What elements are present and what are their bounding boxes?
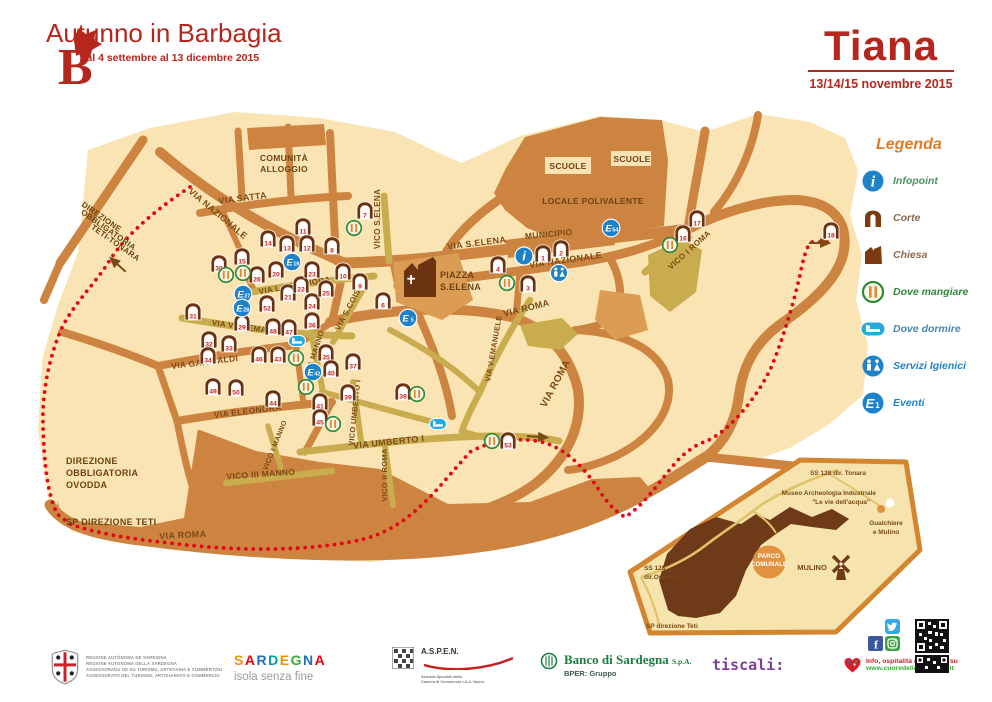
- sardegna-letter: A: [315, 652, 327, 668]
- banco-emblem-icon: [540, 652, 558, 670]
- svg-text:42: 42: [314, 372, 320, 378]
- legend-title: Legenda: [876, 136, 990, 154]
- svg-text:37: 37: [349, 364, 357, 371]
- town-name: Tiana: [806, 24, 956, 68]
- aspen-logo: A.S.P.E.N. Azienda Speciale della Camera…: [392, 647, 516, 685]
- restaurant-marker[interactable]: [500, 276, 515, 291]
- parco-comunale-label: PARCO: [758, 553, 780, 560]
- page: VIA SATTAVIA NAZIONALEVIA S.ELENAMUNICIP…: [0, 0, 992, 702]
- street-label: VICO S.ELENA: [373, 189, 382, 249]
- corte-marker-10[interactable]: 10: [335, 263, 351, 281]
- restaurant-marker[interactable]: [410, 387, 425, 402]
- corte-marker-34[interactable]: 34: [200, 347, 216, 365]
- svg-text:29: 29: [238, 325, 246, 332]
- toilets-icon: [860, 353, 886, 379]
- svg-text:54: 54: [612, 228, 619, 234]
- corte-marker-20[interactable]: 20: [268, 261, 284, 279]
- sardegna-wordmark: SARDEGNA: [234, 652, 326, 670]
- corte-marker-25[interactable]: 25: [318, 280, 334, 298]
- corte-marker-8[interactable]: 8: [324, 237, 340, 255]
- svg-text:10: 10: [339, 274, 347, 281]
- toilets-marker[interactable]: [550, 264, 567, 281]
- restaurant-marker[interactable]: [326, 417, 341, 432]
- restaurant-marker[interactable]: [219, 268, 234, 283]
- event-marker-E54[interactable]: E54: [602, 219, 620, 237]
- svg-text:13: 13: [283, 246, 291, 253]
- svg-text:38: 38: [399, 394, 407, 401]
- svg-text:17: 17: [693, 221, 701, 228]
- inset-label: Museo Archeologia Industriale: [782, 490, 877, 497]
- regione-sardegna-logo: REGIONE AUTÒNOMA DE SARDIGNA REGIONE AUT…: [50, 648, 222, 686]
- facebook-icon[interactable]: f: [868, 636, 883, 651]
- sardegna-letter: E: [280, 652, 291, 668]
- corte-marker-33[interactable]: 33: [221, 335, 237, 353]
- sardegna-letter: G: [291, 652, 303, 668]
- lodging-marker[interactable]: [289, 336, 306, 347]
- svg-text:18: 18: [827, 233, 835, 240]
- svg-text:45: 45: [316, 420, 324, 427]
- svg-text:1: 1: [541, 256, 545, 263]
- restaurant-marker[interactable]: [236, 266, 251, 281]
- svg-text:E: E: [402, 313, 409, 324]
- area-label: PIAZZA: [440, 270, 474, 280]
- corte-marker-48[interactable]: 48: [265, 318, 281, 336]
- area-label: SP DIREZIONE TETI: [66, 517, 156, 527]
- corte-marker-13[interactable]: 13: [279, 235, 295, 253]
- legend-item-servizi: Servizi Igienici: [860, 353, 990, 379]
- corte-marker-50[interactable]: 50: [228, 379, 244, 397]
- sardegna-logo: SARDEGNA isola senza fine: [234, 652, 326, 683]
- inset-label: SS 128: [644, 565, 666, 572]
- corte-marker-12[interactable]: 12: [299, 235, 315, 253]
- area-label: SCUOLE: [613, 154, 650, 164]
- inset-label: SP direzione Teti: [646, 623, 698, 630]
- corte-marker-1[interactable]: 1: [535, 245, 551, 263]
- corte-marker-14[interactable]: 14: [260, 230, 276, 248]
- svg-text:27: 27: [244, 294, 250, 300]
- qr-code-2: [915, 655, 949, 673]
- corte-marker-17[interactable]: 17: [689, 210, 705, 228]
- corte-marker-6[interactable]: 6: [375, 292, 391, 310]
- restaurant-marker[interactable]: [347, 221, 362, 236]
- corte-marker-16[interactable]: 16: [675, 225, 691, 243]
- corte-marker-2[interactable]: 2: [553, 240, 569, 258]
- town-header: Tiana 13/14/15 novembre 2015: [806, 24, 956, 91]
- sardegna-letter: S: [234, 652, 245, 668]
- four-moors-crest-icon: [50, 648, 80, 686]
- inset-label: dir.Ovodda: [644, 574, 678, 581]
- event-marker-E19[interactable]: E19: [283, 253, 301, 271]
- event-marker-E28[interactable]: E28: [233, 299, 251, 317]
- svg-text:26: 26: [253, 277, 261, 284]
- svg-text:14: 14: [264, 241, 272, 248]
- svg-text:39: 39: [344, 395, 352, 402]
- corte-marker-35[interactable]: 35: [318, 344, 334, 362]
- corte-marker-37[interactable]: 37: [345, 353, 361, 371]
- svg-text:24: 24: [308, 304, 316, 311]
- corte-marker-9[interactable]: 9: [352, 273, 368, 291]
- tiscali-logo: tiscali:: [712, 656, 784, 674]
- area-label: OVODDA: [66, 480, 108, 490]
- regione-text: REGIONE AUTÒNOMA DE SARDIGNA REGIONE AUT…: [86, 655, 222, 679]
- corte-marker-3[interactable]: 3: [520, 275, 536, 293]
- area-label: OBBLIGATORIA: [66, 468, 138, 478]
- corte-marker-7[interactable]: 7: [357, 202, 373, 220]
- inset-label: e Mulino: [873, 529, 899, 536]
- corte-marker-23[interactable]: 23: [304, 261, 320, 279]
- svg-text:5: 5: [411, 318, 414, 324]
- event-dates: dal 4 settembre al 13 dicembre 2015: [80, 52, 259, 64]
- svg-text:2: 2: [559, 251, 563, 258]
- corte-marker-41[interactable]: 41: [312, 393, 328, 411]
- event-marker-E42[interactable]: E42: [304, 363, 322, 381]
- svg-text:i: i: [871, 174, 876, 191]
- svg-text:48: 48: [269, 329, 277, 336]
- svg-text:21: 21: [284, 295, 292, 302]
- svg-text:25: 25: [322, 291, 330, 298]
- heart-icon: [843, 656, 862, 674]
- svg-text:33: 33: [225, 346, 233, 353]
- corte-marker-49[interactable]: 49: [205, 378, 221, 396]
- legend-item-dormire: Dove dormire: [860, 316, 990, 342]
- banco-name: Banco di Sardegna S.p.A.: [564, 652, 691, 668]
- footer-logo-bar: REGIONE AUTÒNOMA DE SARDIGNA REGIONE AUT…: [0, 640, 992, 702]
- area-label: LOCALE POLIVALENTE: [542, 196, 644, 206]
- area-label: SCUOLE: [549, 161, 586, 171]
- svg-text:52: 52: [263, 306, 271, 313]
- svg-text:19: 19: [293, 262, 299, 268]
- corte-marker-4[interactable]: 4: [490, 256, 506, 274]
- street-label: VICO II ROMA: [380, 448, 389, 501]
- parco-comunale-label: COMUNALE: [751, 561, 787, 568]
- area-label: S.ELENA: [440, 282, 481, 292]
- legend-item-eventi: E1 Eventi: [860, 390, 990, 416]
- svg-text:28: 28: [243, 308, 249, 314]
- corte-marker-44[interactable]: 44: [265, 390, 281, 408]
- town-map: VIA SATTAVIA NAZIONALEVIA S.ELENAMUNICIP…: [0, 0, 992, 702]
- svg-text:1: 1: [875, 401, 880, 410]
- bper-group: BPER: Gruppo: [564, 669, 691, 678]
- svg-text:15: 15: [238, 259, 246, 266]
- legend-item-mangiare: Dove mangiare: [860, 279, 990, 305]
- svg-text:36: 36: [308, 323, 316, 330]
- aspen-swoosh: [421, 656, 516, 670]
- svg-text:23: 23: [308, 272, 316, 279]
- svg-text:53: 53: [504, 443, 512, 450]
- sardegna-letter: D: [268, 652, 280, 668]
- restaurant-icon: [860, 279, 886, 305]
- arch-icon: [860, 205, 886, 231]
- area-label: DIREZIONE: [66, 456, 118, 466]
- svg-text:49: 49: [209, 389, 217, 396]
- legend: Legenda i Infopoint Corte Chiesa Dove ma…: [860, 130, 990, 427]
- corte-marker-18[interactable]: 18: [823, 222, 839, 240]
- corte-marker-11[interactable]: 11: [295, 218, 311, 236]
- svg-text:34: 34: [204, 358, 212, 365]
- svg-text:3: 3: [526, 286, 530, 293]
- aspen-grid-icon: [392, 647, 414, 669]
- qr-code: [915, 619, 949, 653]
- inset-label: "Le vie dell'acqua": [812, 499, 870, 506]
- svg-text:4: 4: [496, 267, 500, 274]
- town-dates: 13/14/15 novembre 2015: [806, 77, 956, 91]
- gualchiere-dot: [877, 505, 885, 513]
- twitter-icon[interactable]: [885, 619, 900, 634]
- svg-text:43: 43: [274, 357, 282, 364]
- event-marker-E5[interactable]: E5: [399, 309, 417, 327]
- sardegna-letter: R: [256, 652, 268, 668]
- area-label: COMUNITÀ: [260, 153, 308, 163]
- inset-label: Gualchiere: [869, 520, 903, 527]
- corte-marker-36[interactable]: 36: [304, 312, 320, 330]
- corte-marker-32[interactable]: 32: [201, 331, 217, 349]
- corte-marker-52[interactable]: 52: [259, 295, 275, 313]
- corte-marker-47[interactable]: 47: [281, 319, 297, 337]
- restaurant-marker[interactable]: [289, 351, 304, 366]
- legend-item-corte: Corte: [860, 205, 990, 231]
- svg-text:16: 16: [679, 236, 687, 243]
- svg-text:22: 22: [297, 287, 305, 294]
- church-icon: [860, 242, 886, 268]
- svg-text:40: 40: [327, 371, 335, 378]
- svg-text:6: 6: [381, 303, 385, 310]
- bed-icon: [860, 316, 886, 342]
- title-rule: [808, 70, 954, 72]
- svg-text:8: 8: [330, 248, 334, 255]
- legend-item-infopoint: i Infopoint: [860, 168, 990, 194]
- corte-marker-31[interactable]: 31: [185, 303, 201, 321]
- svg-text:9: 9: [358, 284, 362, 291]
- inset-label: SS 128 dir. Tonara: [810, 470, 866, 477]
- svg-text:44: 44: [269, 401, 277, 408]
- lodging-marker[interactable]: [430, 419, 447, 430]
- svg-text:12: 12: [303, 246, 311, 253]
- svg-text:31: 31: [189, 314, 197, 321]
- sardegna-tagline: isola senza fine: [234, 671, 326, 683]
- banco-di-sardegna-logo: Banco di Sardegna S.p.A. BPER: Gruppo: [540, 652, 691, 678]
- restaurant-marker[interactable]: [485, 434, 500, 449]
- svg-text:50: 50: [232, 390, 240, 397]
- corte-marker-43[interactable]: 43: [270, 346, 286, 364]
- corte-marker-53[interactable]: 53: [500, 432, 516, 450]
- restaurant-marker[interactable]: [299, 380, 314, 395]
- infopoint-marker[interactable]: i: [515, 247, 533, 265]
- svg-text:E: E: [866, 396, 875, 411]
- event-badge-icon: E1: [860, 390, 886, 416]
- sardegna-letter: A: [245, 652, 257, 668]
- corte-marker-39[interactable]: 39: [340, 384, 356, 402]
- legend-item-chiesa: Chiesa: [860, 242, 990, 268]
- restaurant-marker[interactable]: [663, 238, 678, 253]
- corte-marker-26[interactable]: 26: [249, 266, 265, 284]
- aspen-text: A.S.P.E.N. Azienda Speciale della Camera…: [421, 647, 516, 685]
- corte-marker-46[interactable]: 46: [251, 346, 267, 364]
- area-label: ALLOGGIO: [260, 164, 308, 174]
- svg-text:20: 20: [272, 272, 280, 279]
- svg-text:7: 7: [363, 213, 367, 220]
- corte-marker-22[interactable]: 22: [293, 276, 309, 294]
- svg-text:46: 46: [255, 357, 263, 364]
- inset-label: MULINO: [797, 563, 827, 572]
- infopoint-icon: i: [860, 168, 886, 194]
- corte-marker-40[interactable]: 40: [323, 360, 339, 378]
- instagram-icon[interactable]: [885, 636, 900, 651]
- event-title: Autunno in Barbagia: [46, 18, 282, 49]
- corte-marker-15[interactable]: 15: [234, 248, 250, 266]
- inset-map: [630, 460, 920, 633]
- museo-dot: [886, 499, 895, 508]
- sardegna-letter: N: [303, 652, 315, 668]
- corte-marker-38[interactable]: 38: [395, 383, 411, 401]
- svg-text:i: i: [522, 249, 526, 264]
